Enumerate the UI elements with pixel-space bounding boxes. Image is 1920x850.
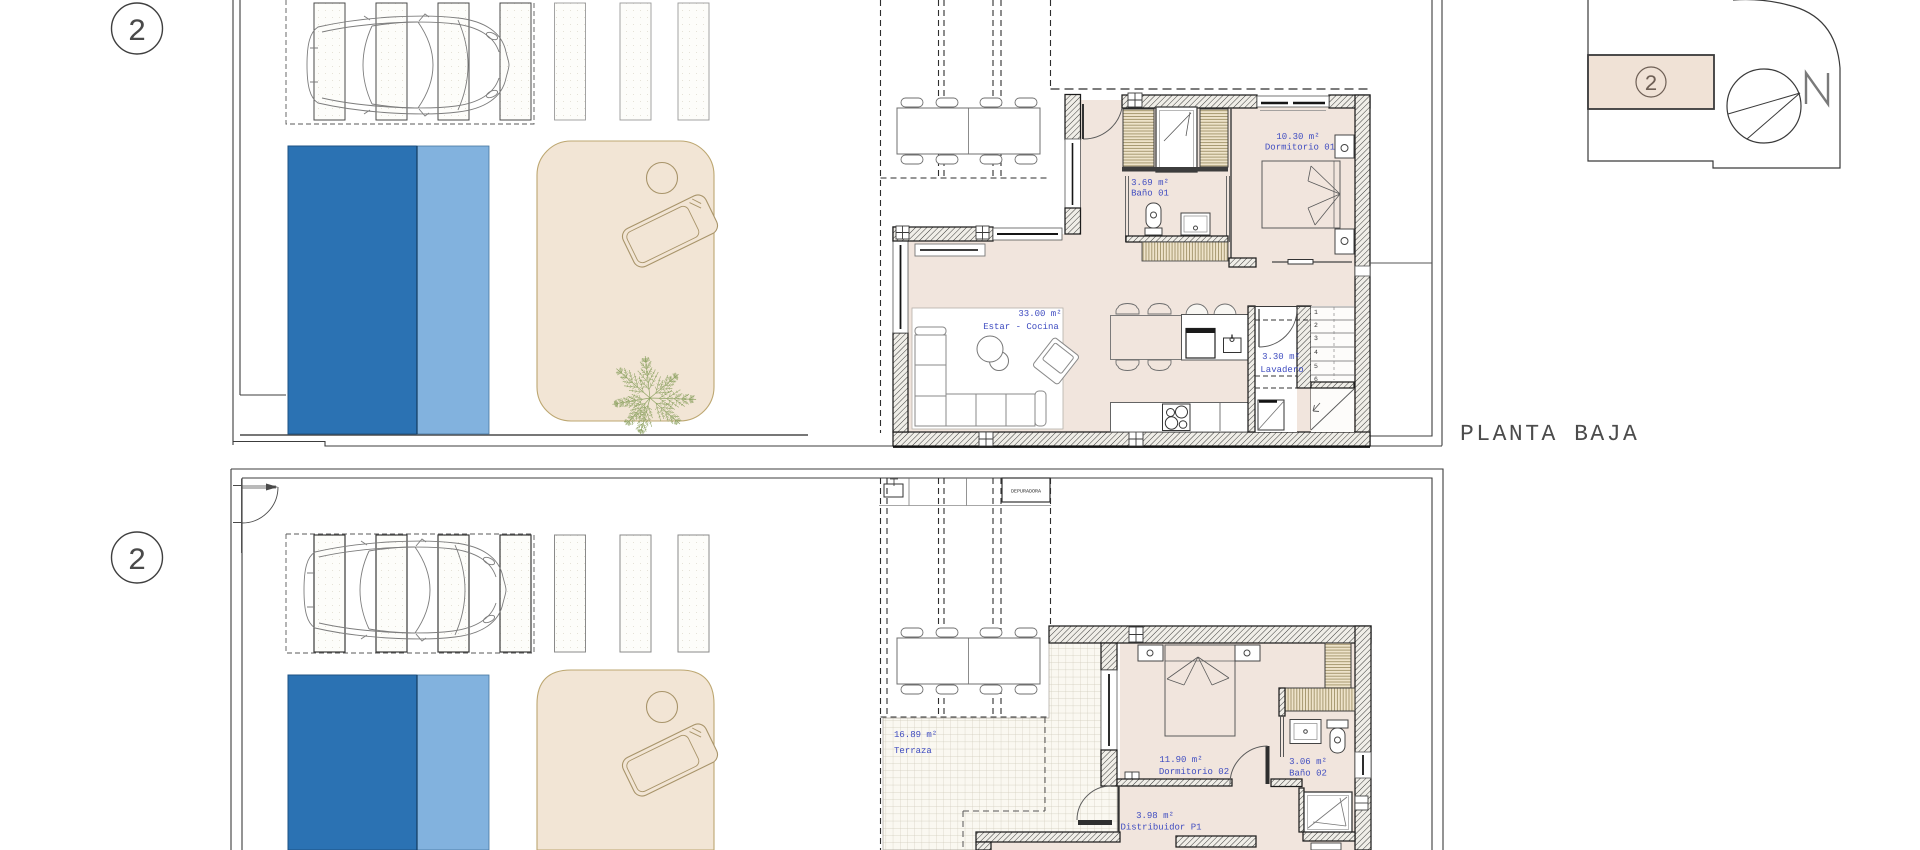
svg-text:3.30 m²: 3.30 m²: [1262, 352, 1300, 362]
svg-text:4: 4: [1314, 349, 1318, 356]
svg-text:16.89 m²: 16.89 m²: [894, 730, 937, 740]
svg-text:Terraza: Terraza: [894, 746, 932, 756]
svg-text:1: 1: [1314, 309, 1318, 316]
svg-text:2: 2: [1644, 72, 1657, 97]
svg-text:Dormitorio 02: Dormitorio 02: [1159, 767, 1229, 777]
svg-text:2: 2: [128, 15, 147, 50]
svg-text:10.30 m²: 10.30 m²: [1276, 132, 1319, 142]
svg-text:Dormitorio 01: Dormitorio 01: [1265, 143, 1335, 153]
svg-text:3.98 m²: 3.98 m²: [1136, 811, 1174, 821]
svg-text:DEPURADORA: DEPURADORA: [1011, 489, 1041, 495]
svg-text:Distribuidor P1: Distribuidor P1: [1120, 823, 1201, 833]
svg-text:Baño 02: Baño 02: [1289, 769, 1327, 779]
svg-text:Baño 01: Baño 01: [1131, 189, 1169, 199]
svg-text:3: 3: [1314, 335, 1318, 342]
svg-text:3.69 m²: 3.69 m²: [1131, 178, 1169, 188]
svg-text:33.00 m²: 33.00 m²: [1018, 309, 1061, 319]
svg-text:Estar - Cocina: Estar - Cocina: [983, 322, 1059, 332]
svg-text:PLANTA BAJA: PLANTA BAJA: [1460, 421, 1639, 447]
svg-text:2: 2: [1314, 322, 1318, 329]
svg-text:Lavadero: Lavadero: [1260, 365, 1303, 375]
svg-text:11.90 m²: 11.90 m²: [1159, 755, 1202, 765]
svg-text:3.06 m²: 3.06 m²: [1289, 757, 1327, 767]
svg-text:5: 5: [1314, 363, 1318, 370]
svg-text:2: 2: [128, 544, 147, 579]
